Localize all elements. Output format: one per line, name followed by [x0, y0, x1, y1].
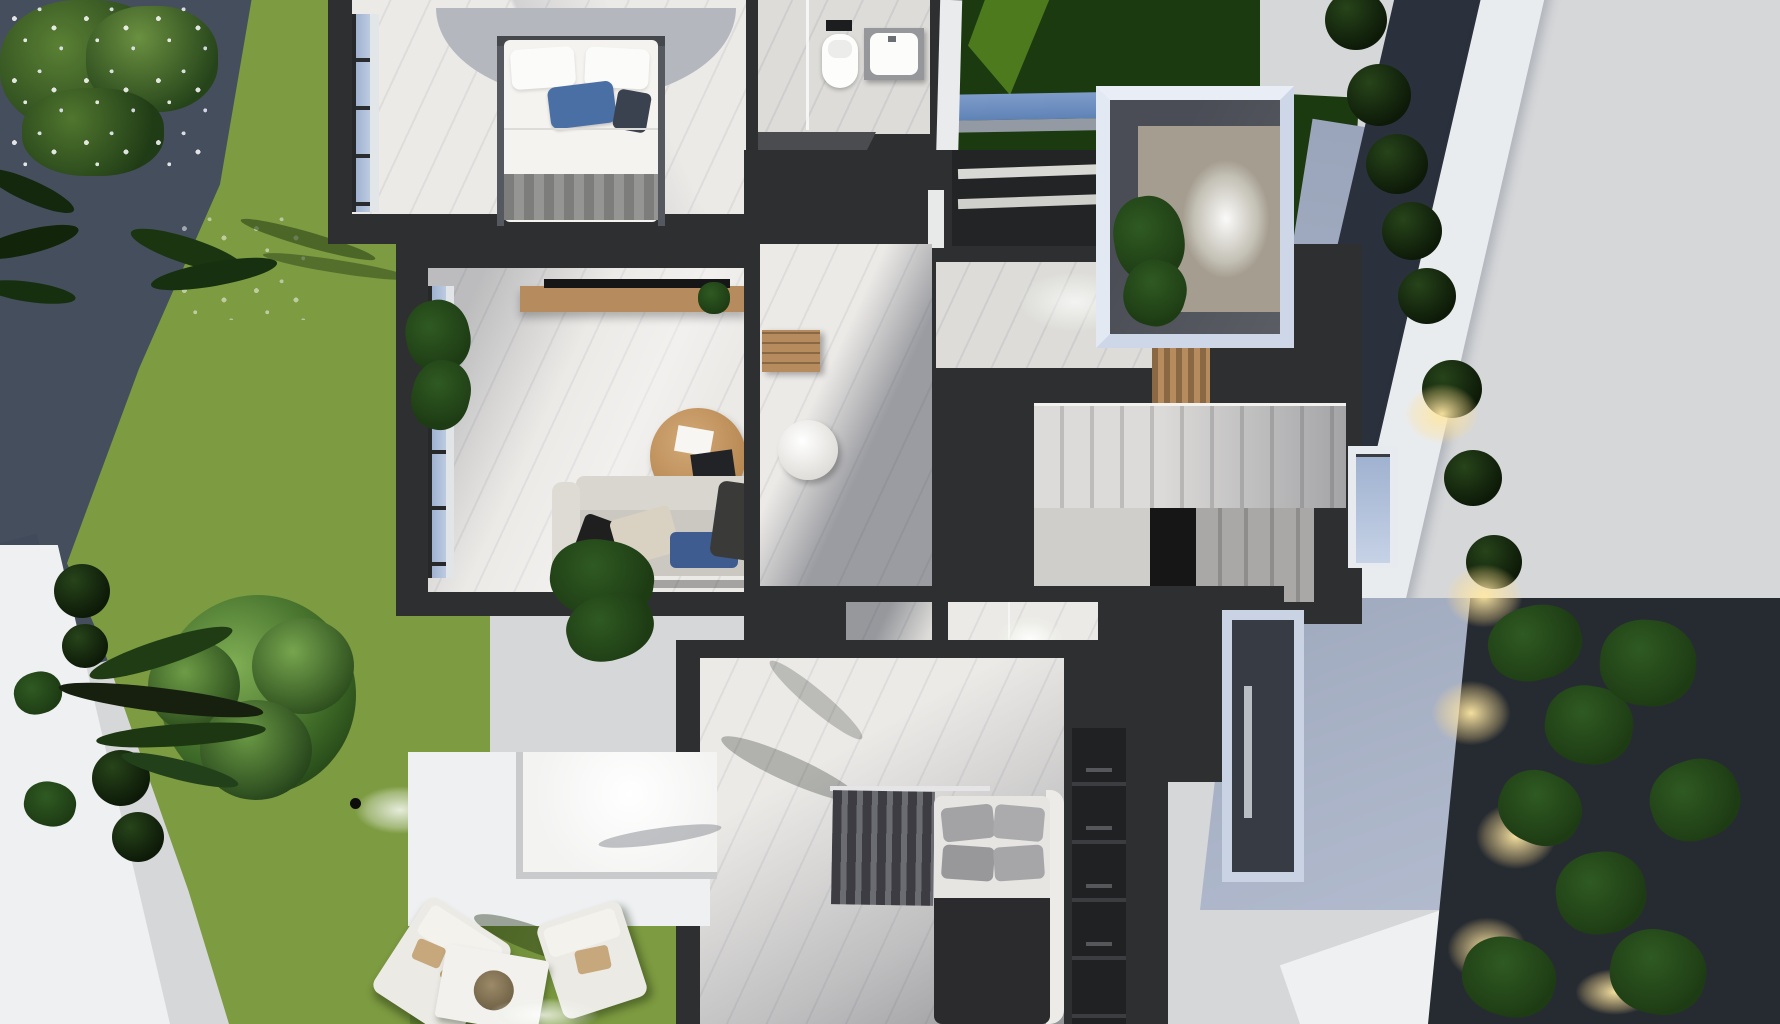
lightwell-upper — [1096, 86, 1294, 348]
bed-frame-right — [658, 36, 665, 226]
topiary-ball — [1444, 450, 1502, 506]
blue-accent-pillow — [547, 80, 618, 130]
hanging-pouf — [778, 420, 838, 480]
white-flowers — [0, 0, 210, 170]
topiary-ball — [112, 812, 164, 862]
dark-side-pillow — [612, 88, 652, 133]
villa-top-down-render — [0, 0, 1780, 1024]
wall-light-glow — [1416, 668, 1526, 758]
gray-pillow — [993, 844, 1045, 881]
double-bed — [497, 36, 665, 226]
sunlit-wall-sliver — [936, 0, 962, 168]
shower-screen — [806, 0, 809, 130]
bed-pillow-left — [510, 46, 577, 90]
topiary-ball — [1347, 64, 1411, 126]
topiary-ball — [1382, 202, 1442, 260]
wall-light-glow — [1390, 372, 1494, 456]
topiary-ball — [1398, 268, 1456, 324]
dark-duvet — [934, 898, 1050, 1024]
gray-pillow — [941, 844, 995, 882]
topiary-ball — [1366, 134, 1428, 194]
lower-floor-window — [1244, 686, 1252, 818]
terrace-glow-court — [516, 752, 717, 879]
terrace-spotlight-glow — [468, 992, 618, 1024]
gray-pillow — [940, 803, 995, 842]
topiary-ball — [62, 624, 108, 668]
lightwell-spotlight — [1168, 140, 1284, 298]
entry-floor-shadow — [760, 244, 932, 588]
wardrobe-handle — [1086, 884, 1112, 888]
console-plant — [698, 282, 730, 314]
bed-lower — [934, 790, 1064, 1024]
bed-frame-left — [497, 36, 504, 226]
topiary-ball — [1325, 0, 1387, 50]
wardrobe-handle — [1086, 942, 1112, 946]
entry-bench — [762, 330, 820, 372]
stair-window-glass — [1356, 454, 1390, 563]
tree-canopy-lobe — [252, 618, 354, 714]
gray-pillow — [993, 804, 1046, 842]
window-sill — [370, 14, 379, 212]
garden-spotlight — [350, 798, 361, 809]
duvet-fold-line — [504, 128, 658, 130]
stair-upper-shade — [1034, 406, 1346, 508]
front-door-frame — [928, 190, 944, 248]
basin-faucet — [888, 36, 896, 42]
wardrobe-handle — [1086, 826, 1112, 830]
curtain-panel — [831, 790, 935, 906]
topiary-ball — [54, 564, 110, 618]
drawer-wardrobe — [1072, 728, 1126, 1024]
flush-plate — [826, 20, 852, 31]
gray-foot-throw — [504, 174, 658, 220]
wardrobe-handle — [1086, 768, 1112, 772]
toilet-lid-line — [828, 40, 852, 58]
lightwell-lower — [1222, 610, 1304, 882]
